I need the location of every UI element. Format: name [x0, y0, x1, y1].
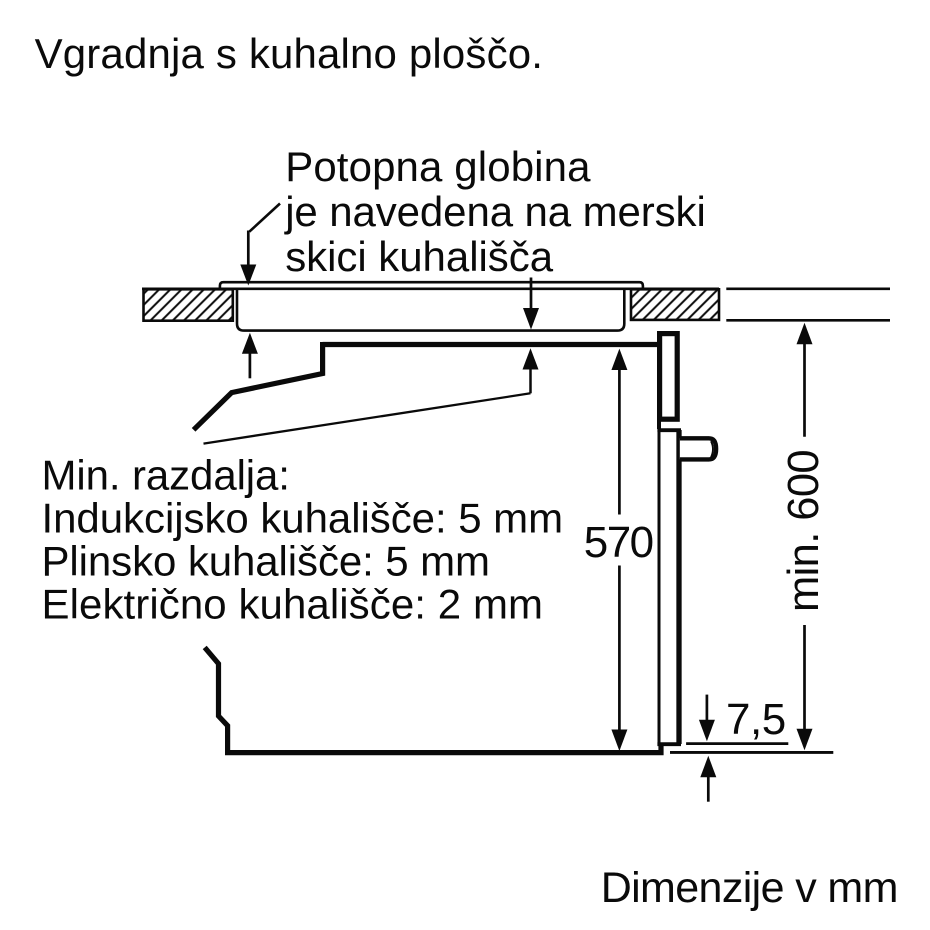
- svg-text:7,5: 7,5: [726, 695, 786, 744]
- svg-text:Min. razdalja:: Min. razdalja:: [42, 452, 290, 499]
- svg-text:Indukcijsko kuhališče: 5 mm: Indukcijsko kuhališče: 5 mm: [42, 494, 564, 541]
- svg-text:skici kuhališča: skici kuhališča: [285, 233, 554, 280]
- svg-text:570: 570: [584, 518, 653, 567]
- svg-text:Vgradnja s kuhalno ploščo.: Vgradnja s kuhalno ploščo.: [35, 30, 543, 77]
- svg-text:je navedena na merski: je navedena na merski: [283, 188, 705, 235]
- svg-text:Dimenzije v mm: Dimenzije v mm: [601, 864, 898, 912]
- svg-text:Plinsko kuhališče: 5 mm: Plinsko kuhališče: 5 mm: [42, 537, 490, 584]
- svg-text:min. 600: min. 600: [780, 450, 828, 612]
- svg-text:Potopna globina: Potopna globina: [285, 143, 591, 190]
- svg-text:Električno kuhališče: 2 mm: Električno kuhališče: 2 mm: [42, 580, 544, 627]
